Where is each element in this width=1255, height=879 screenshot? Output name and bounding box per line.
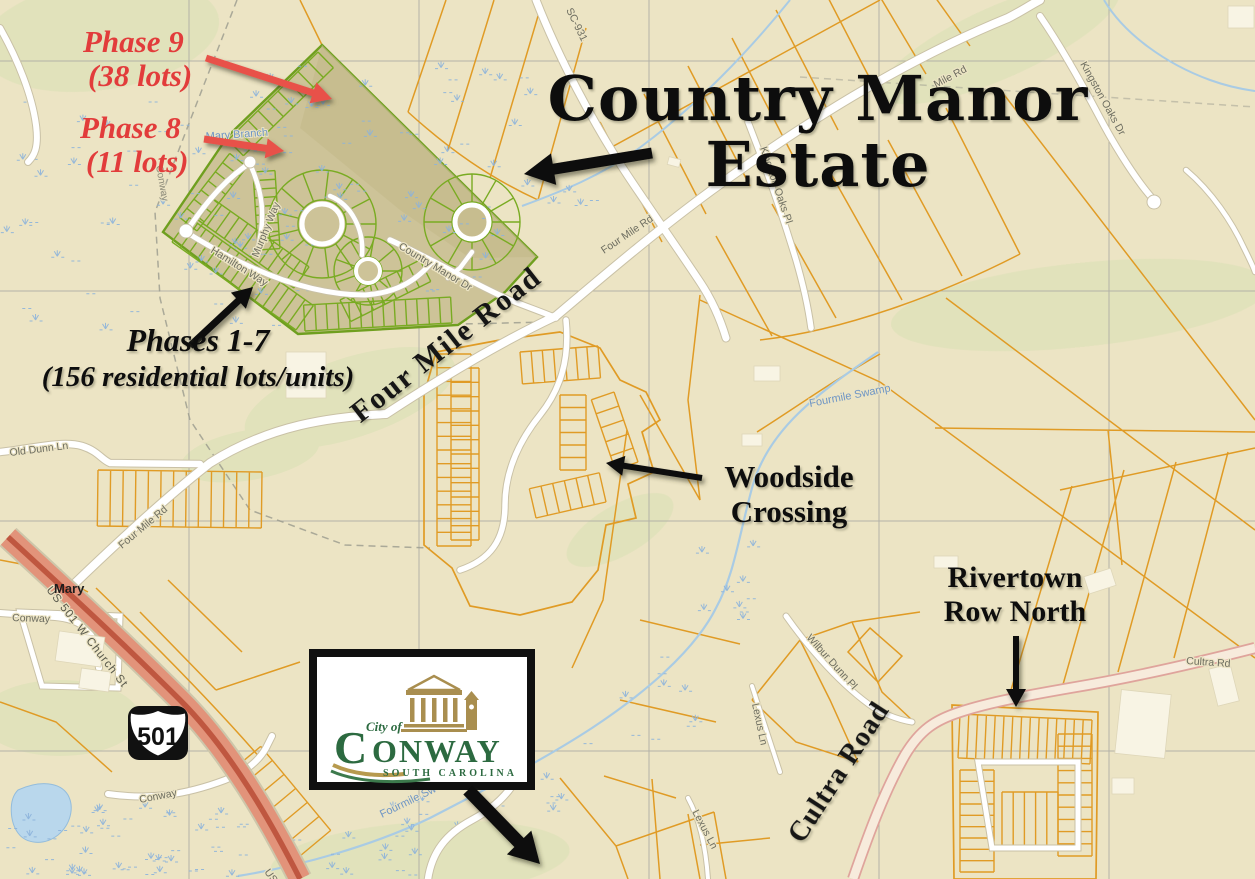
- building-footprint: [1228, 6, 1254, 28]
- phase9-label: Phase 9: [82, 24, 184, 59]
- phase8-label: Phase 8: [79, 110, 181, 145]
- shield-route-number: 501: [137, 723, 179, 751]
- building-footprint: [742, 434, 762, 446]
- rivertown-callout: Rivertown Row North: [944, 561, 1087, 628]
- culdesac-bulb: [1147, 195, 1161, 209]
- conway-logo-box: City of C ONWAY SOUTH CAROLINA: [313, 653, 531, 786]
- woodside-callout: Woodside Crossing: [724, 459, 853, 529]
- woodside-label-line2: Crossing: [731, 494, 848, 529]
- phase8-lots: (11 lots): [86, 144, 188, 179]
- rivertown-label-line1: Rivertown: [948, 561, 1083, 594]
- phases-1-7-lots: (156 residential lots/units): [42, 361, 355, 393]
- woodside-label-line1: Woodside: [724, 459, 853, 494]
- county-parcel-map: SC-931 Four Mile Rd Mile Rd Four Mile Rd…: [0, 0, 1255, 879]
- phase9-callout: Phase 9 (38 lots): [82, 24, 192, 93]
- phase9-lots: (38 lots): [88, 58, 192, 93]
- place-label-mary: Mary: [54, 581, 85, 596]
- logo-state: SOUTH CAROLINA: [383, 768, 517, 779]
- logo-name-rest: ONWAY: [372, 733, 502, 769]
- culdesac-bulb: [244, 156, 256, 168]
- us501-shield: 501: [128, 706, 188, 760]
- rivertown-label-line2: Row North: [944, 595, 1087, 628]
- building-footprint: [1112, 778, 1134, 794]
- road-label-conway-west: Conway: [12, 612, 51, 625]
- building-footprint: [754, 366, 780, 381]
- phase8-callout: Phase 8 (11 lots): [79, 110, 188, 179]
- title-line1: Country Manor: [548, 62, 1089, 135]
- phases-1-7-label: Phases 1-7: [125, 322, 271, 358]
- building-footprint: [1115, 690, 1171, 759]
- logo-city-of: City of: [366, 719, 403, 734]
- title-line2: Estate: [705, 128, 930, 201]
- culdesac-bulb: [179, 224, 193, 238]
- logo-name-initial: C: [334, 722, 367, 773]
